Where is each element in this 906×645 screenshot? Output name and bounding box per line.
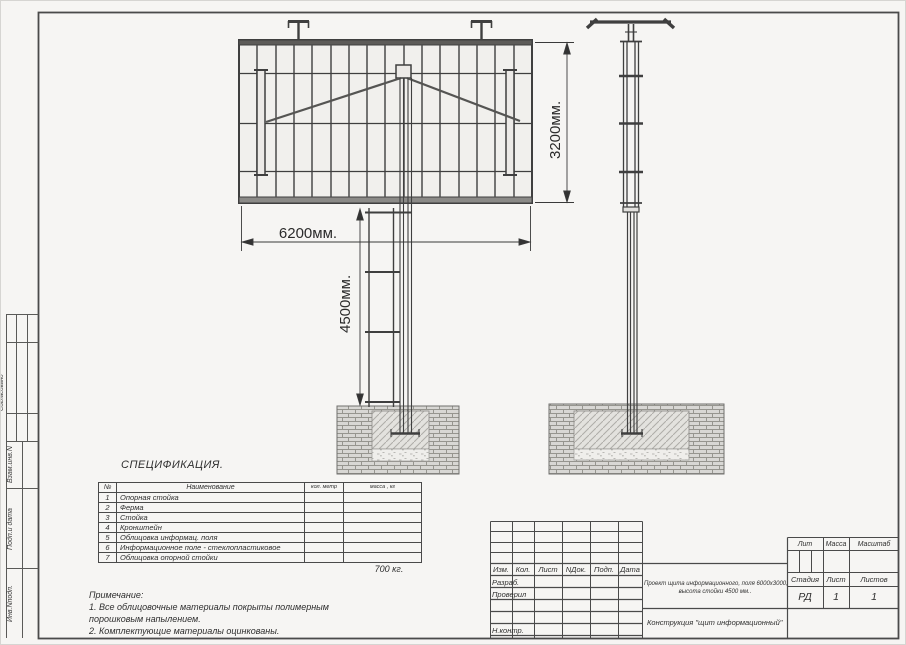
titleblock-list-label: Лист [823, 574, 849, 585]
specification-total: 700 кг. [349, 564, 429, 574]
titleblock-listov-value: 1 [849, 591, 899, 604]
drawing-sheet: 6200мм. 4500мм. 3200мм. Согласовано Взам… [0, 0, 906, 645]
titleblock-stadia-value: РД [787, 591, 823, 604]
titleblock-row-proveril: Проверил [492, 589, 526, 600]
titleblock-massa-label: Масса [823, 539, 849, 550]
notes-title: Примечание: [89, 589, 329, 601]
spec-row: 6Информационное поле - стеклопластиковое [99, 543, 422, 553]
notes-block: Примечание: 1. Все облицовочные материал… [89, 589, 329, 637]
titleblock-col-podp: Подп. [590, 564, 618, 575]
margin-label-podp-data: Подп.и дата [7, 491, 22, 567]
titleblock-lit-label: Лит [787, 539, 823, 550]
titleblock-col-izm: Изм. [490, 564, 512, 575]
titleblock-col-ndok: NДок. [562, 564, 590, 575]
margin-label-inv-podl: Инв.Nподп. [7, 571, 22, 637]
dim-stand-height-label: 4500мм. [337, 259, 354, 349]
titleblock-description-line1: Проект щита информационного, поля 6000х3… [644, 580, 786, 588]
specification-title: СПЕЦИФИКАЦИЯ. [121, 459, 223, 471]
titleblock-col-data: Дата [618, 564, 642, 575]
titleblock-masshtab-label: Масштаб [849, 539, 899, 550]
titleblock-row-razrab: Разраб. [492, 577, 519, 588]
titleblock-col-kol: Кол. [512, 564, 534, 575]
margin-label-vzam-inv: Взам.инв.N [7, 443, 22, 487]
titleblock-listov-label: Листов [849, 574, 899, 585]
spec-row: 4Кронштейн [99, 523, 422, 533]
spec-row: 5Облицовка информац. поля [99, 533, 422, 543]
titleblock-col-list: Лист [534, 564, 562, 575]
spec-header-row: № Наименование кол. метр масса , кг [99, 483, 422, 493]
dim-panel-width-label: 6200мм. [268, 225, 348, 242]
titleblock-stadia-label: Стадия [787, 574, 823, 585]
spec-row: 1Опорная стойка [99, 493, 422, 503]
spec-row: 3Стойка [99, 513, 422, 523]
titleblock-row-nkontr: Н.контр. [492, 625, 524, 636]
titleblock-list-value: 1 [823, 591, 849, 604]
titleblock-description: Проект щита информационного, поля 6000х3… [644, 580, 786, 596]
spec-header-mass: масса , кг [344, 483, 422, 493]
spec-header-qty: кол. метр [305, 483, 344, 493]
titleblock-description-line2: высота стойки 4500 мм.. [644, 588, 786, 596]
foundation-front [337, 406, 459, 474]
note-line-2: порошковым напылением. [89, 613, 329, 625]
spec-row: 2Ферма [99, 503, 422, 513]
spec-row: 7Облицовка опорной стойки [99, 553, 422, 563]
side-view [587, 19, 674, 437]
spec-header-no: № [99, 483, 117, 493]
spec-header-name: Наименование [117, 483, 305, 493]
note-line-1: 1. Все облицовочные материалы покрыты по… [89, 601, 329, 613]
dim-panel-height-label: 3200мм. [547, 85, 564, 175]
titleblock-construction: Конструкция "щит информационный" [647, 617, 785, 628]
note-line-3: 2. Комплектующие материалы оцинкованы. [89, 625, 329, 637]
specification-table: № Наименование кол. метр масса , кг 1Опо… [98, 482, 422, 563]
margin-label-soglasovano: Согласовано [0, 369, 5, 417]
